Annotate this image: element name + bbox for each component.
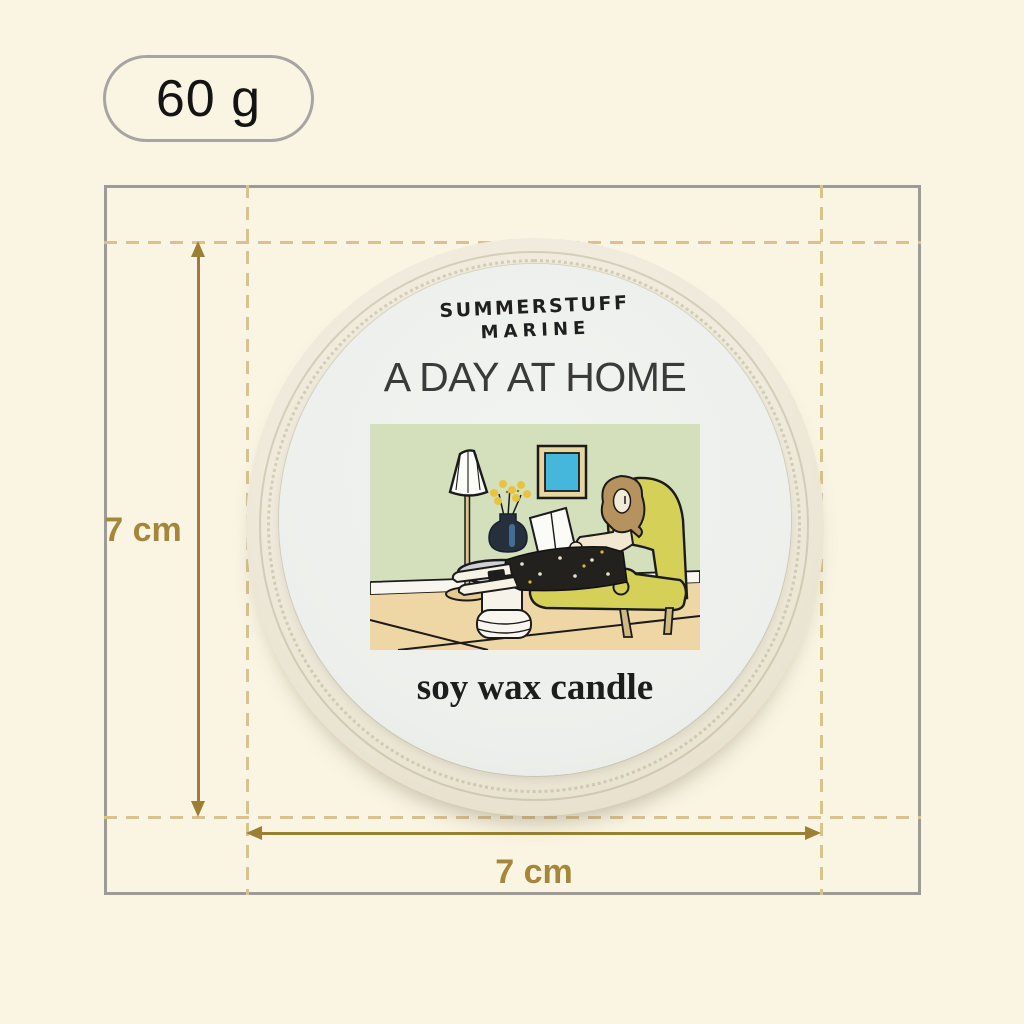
tin-label: SUMMERSTUFF MARINE A DAY AT HOME <box>279 264 791 776</box>
face <box>614 489 631 513</box>
weight-badge-label: 60 g <box>156 69 261 129</box>
width-dimension-label: 7 cm <box>474 853 594 892</box>
weight-badge: 60 g <box>103 55 314 142</box>
product-subtitle: soy wax candle <box>279 666 791 709</box>
height-dimension-line <box>197 256 200 803</box>
height-dimension-label: 7 cm <box>104 511 182 550</box>
arrow-left-icon <box>246 826 262 840</box>
picture-frame <box>538 446 586 498</box>
product-title: A DAY AT HOME <box>279 354 791 401</box>
vase-highlight <box>509 524 515 547</box>
guide-line-bottom <box>104 816 921 819</box>
label-illustration <box>370 424 700 650</box>
arrow-right-icon <box>805 826 821 840</box>
arrow-down-icon <box>191 801 205 817</box>
picture-art <box>545 453 579 491</box>
arrow-up-icon <box>191 241 205 257</box>
width-dimension-line <box>261 832 806 835</box>
candle-tin: SUMMERSTUFF MARINE A DAY AT HOME <box>246 238 824 816</box>
product-dimensions-figure: 60 g 7 cm 7 cm SUMMERSTUFF MARINE A DAY … <box>0 0 1024 1024</box>
